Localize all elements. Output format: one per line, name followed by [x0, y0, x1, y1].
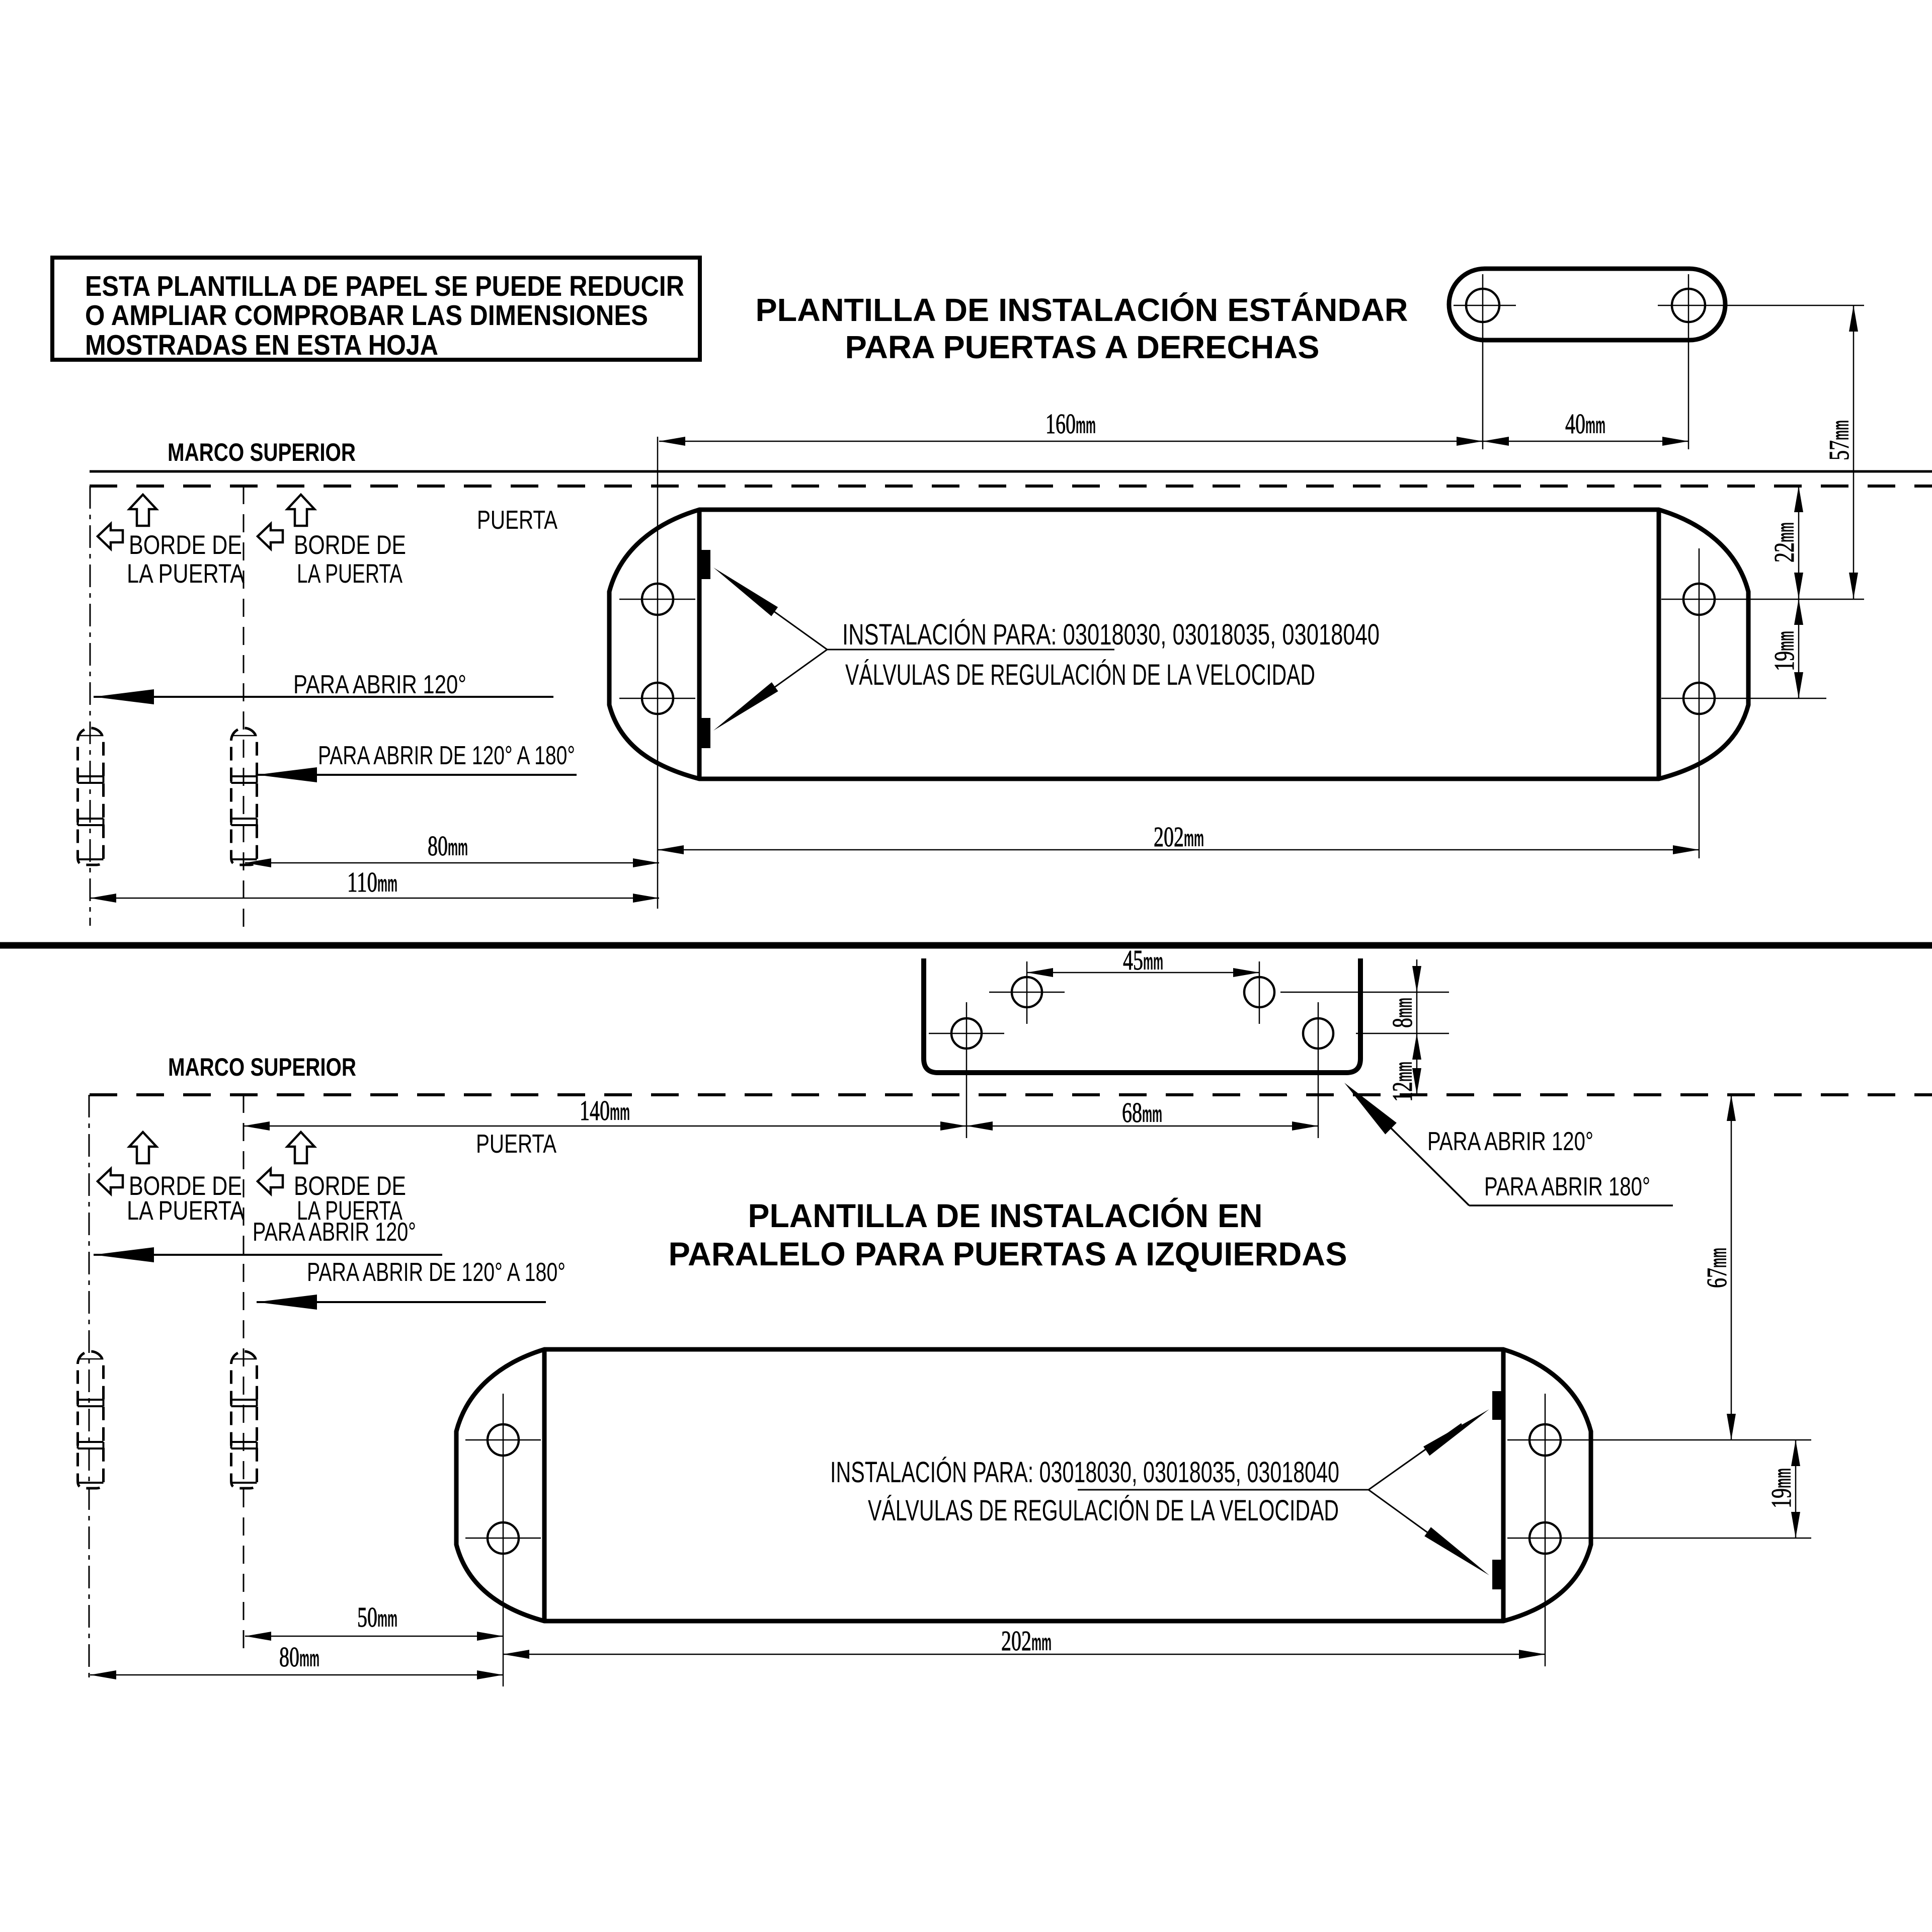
svg-text:VÁLVULAS DE REGULACIÓN DE LA V: VÁLVULAS DE REGULACIÓN DE LA VELOCIDAD [868, 1494, 1339, 1527]
svg-text:mm: mm [1827, 420, 1854, 440]
svg-text:PARA ABRIR 120°: PARA ABRIR 120° [253, 1218, 416, 1247]
svg-text:202: 202 [1001, 1626, 1031, 1657]
svg-text:PLANTILLA DE INSTALACIÓN EN: PLANTILLA DE INSTALACIÓN EN [748, 1197, 1263, 1234]
svg-text:202: 202 [1154, 822, 1184, 853]
svg-text:PARA ABRIR 180°: PARA ABRIR 180° [1484, 1172, 1650, 1201]
svg-text:PLANTILLA DE INSTALACIÓN ESTÁN: PLANTILLA DE INSTALACIÓN ESTÁNDAR [756, 292, 1408, 328]
svg-text:mm: mm [1143, 948, 1163, 975]
svg-text:mm: mm [1391, 1062, 1417, 1082]
svg-text:mm: mm [610, 1099, 630, 1125]
svg-text:PARA ABRIR 120°: PARA ABRIR 120° [293, 670, 466, 699]
svg-text:MARCO SUPERIOR: MARCO SUPERIOR [168, 1053, 356, 1081]
svg-text:PARALELO PARA PUERTAS A IZQUIE: PARALELO PARA PUERTAS A IZQUIERDAS [669, 1235, 1347, 1272]
svg-text:BORDE DE: BORDE DE [129, 530, 242, 560]
svg-text:mm: mm [1142, 1101, 1162, 1127]
svg-text:mm: mm [299, 1645, 319, 1671]
svg-text:160: 160 [1045, 409, 1076, 440]
svg-text:mm: mm [377, 1605, 397, 1632]
svg-text:110: 110 [347, 867, 377, 898]
svg-text:45: 45 [1123, 945, 1143, 976]
svg-text:mm: mm [377, 870, 397, 897]
svg-text:mm: mm [1773, 522, 1799, 542]
svg-text:VÁLVULAS DE REGULACIÓN DE LA V: VÁLVULAS DE REGULACIÓN DE LA VELOCIDAD [845, 659, 1315, 691]
svg-text:INSTALACIÓN PARA: 03018030, 03: INSTALACIÓN PARA: 03018030, 03018035, 03… [842, 618, 1380, 651]
svg-text:50: 50 [357, 1602, 377, 1633]
svg-text:40: 40 [1565, 409, 1585, 440]
svg-text:LA PUERTA: LA PUERTA [127, 1196, 245, 1226]
svg-text:mm: mm [1769, 1468, 1796, 1488]
svg-text:PARA ABRIR DE 120° A 180°: PARA ABRIR DE 120° A 180° [318, 741, 575, 770]
svg-text:mm: mm [1585, 412, 1605, 438]
svg-text:PARA ABRIR DE 120° A 180°: PARA ABRIR DE 120° A 180° [307, 1258, 566, 1287]
svg-text:LA PUERTA: LA PUERTA [297, 559, 403, 589]
svg-text:80: 80 [428, 831, 448, 862]
svg-text:19: 19 [1766, 1488, 1797, 1508]
svg-text:PUERTA: PUERTA [477, 506, 557, 535]
svg-text:INSTALACIÓN PARA: 03018030, 03: INSTALACIÓN PARA: 03018030, 03018035, 03… [830, 1456, 1339, 1489]
svg-text:mm: mm [448, 834, 468, 860]
svg-text:mm: mm [1184, 825, 1204, 851]
svg-text:12: 12 [1387, 1082, 1418, 1102]
svg-text:80: 80 [279, 1642, 299, 1673]
svg-text:PARA PUERTAS A DERECHAS: PARA PUERTAS A DERECHAS [845, 329, 1320, 365]
svg-text:BORDE DE: BORDE DE [294, 530, 406, 560]
svg-text:8: 8 [1387, 1018, 1418, 1028]
svg-text:PUERTA: PUERTA [476, 1130, 556, 1159]
svg-text:67: 67 [1702, 1268, 1733, 1288]
svg-text:PARA ABRIR 120°: PARA ABRIR 120° [1427, 1127, 1593, 1156]
svg-text:19: 19 [1769, 651, 1800, 671]
svg-text:mm: mm [1705, 1248, 1731, 1268]
svg-text:MOSTRADAS EN ESTA HOJA: MOSTRADAS EN ESTA HOJA [85, 329, 438, 361]
svg-text:mm: mm [1773, 631, 1799, 651]
svg-text:57: 57 [1824, 440, 1855, 460]
svg-text:mm: mm [1031, 1629, 1052, 1655]
svg-text:LA PUERTA: LA PUERTA [127, 559, 245, 589]
svg-text:22: 22 [1769, 542, 1800, 562]
svg-text:MARCO SUPERIOR: MARCO SUPERIOR [168, 438, 356, 466]
svg-text:mm: mm [1076, 412, 1096, 438]
svg-text:68: 68 [1122, 1097, 1142, 1129]
svg-text:mm: mm [1391, 998, 1417, 1018]
svg-text:O AMPLIAR COMPROBAR LAS DIMENS: O AMPLIAR COMPROBAR LAS DIMENSIONES [85, 299, 648, 332]
svg-text:ESTA PLANTILLA DE PAPEL SE PUE: ESTA PLANTILLA DE PAPEL SE PUEDE REDUCIR [85, 270, 684, 302]
svg-text:140: 140 [580, 1095, 610, 1126]
